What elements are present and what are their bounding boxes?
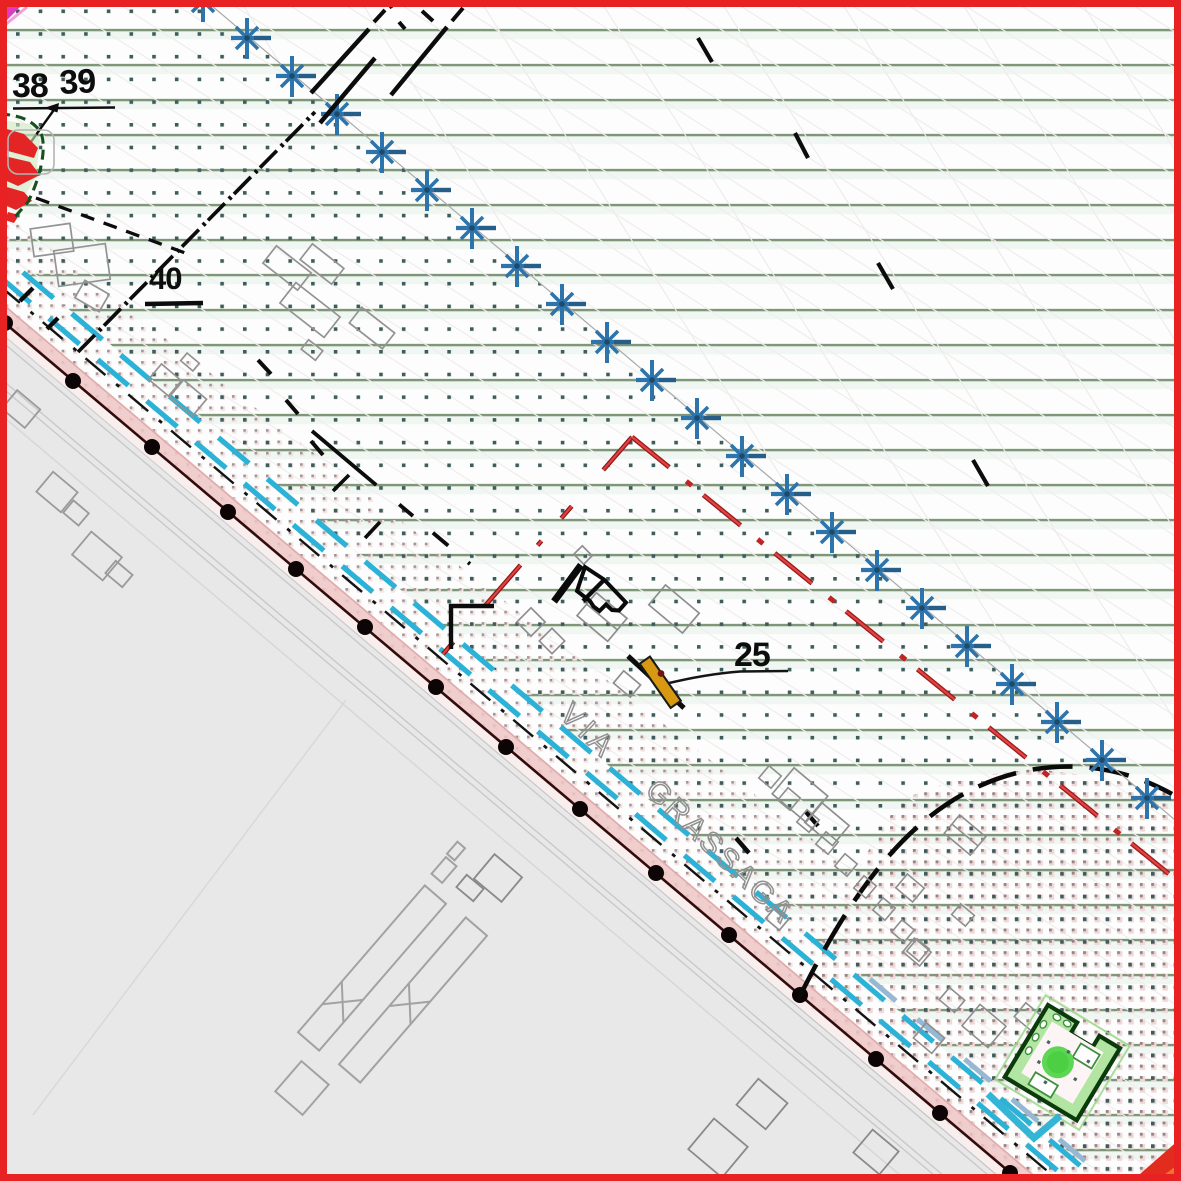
svg-text:39: 39 bbox=[58, 62, 96, 102]
svg-text:40: 40 bbox=[149, 261, 181, 296]
svg-text:25: 25 bbox=[734, 636, 770, 674]
svg-text:38: 38 bbox=[12, 67, 48, 105]
